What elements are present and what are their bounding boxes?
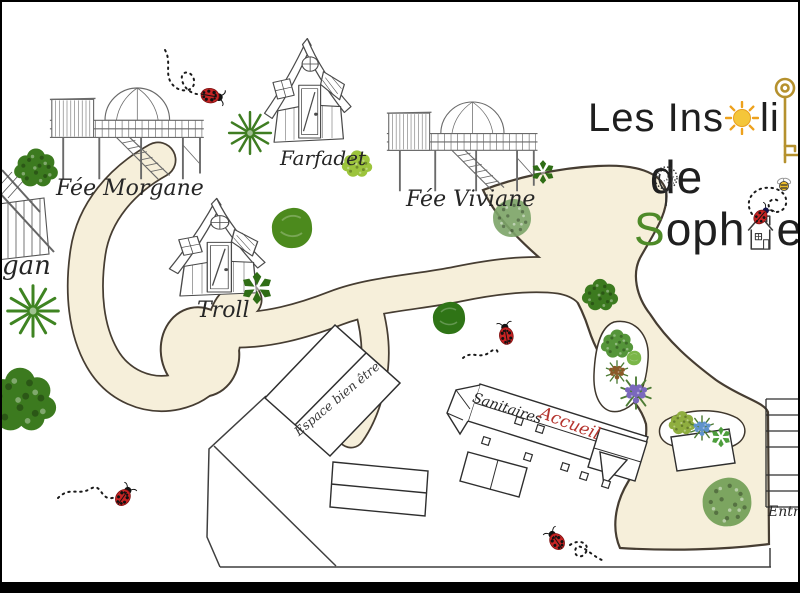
bush-icon (14, 148, 58, 186)
cabin-label-korrigan-partial: gan (2, 253, 51, 279)
fern-icon (8, 286, 59, 337)
parking-stalls (766, 399, 799, 507)
key-icon (772, 76, 800, 179)
bush-icon (272, 208, 312, 248)
logo-text: e (776, 206, 800, 252)
cabin-label-fee-morgane: Fée Morgane (56, 178, 204, 200)
fern-icon (229, 112, 271, 154)
cabin-label-fee-viviane: Fée Viviane (406, 189, 535, 211)
ladybug-icon (543, 526, 568, 553)
cabin-fee-viviane-illustration (387, 102, 538, 191)
ladybug-icon (112, 482, 137, 509)
ladybug-icon (200, 86, 226, 106)
map-canvas (0, 0, 800, 600)
tree-icon (648, 164, 684, 213)
site-map: gan Fée Morgane Farfadet Fée Viviane Tro… (0, 0, 800, 600)
logo-line1: Les Ins li (588, 98, 780, 138)
big-bush-icon (0, 368, 56, 431)
map-label-entree: Entrée (768, 505, 800, 519)
sun-icon (725, 101, 759, 135)
bush-icon (433, 302, 465, 334)
cabin-farfadet-illustration (265, 39, 351, 143)
cabin-label-troll: Troll (197, 300, 250, 322)
building-two-rows (330, 462, 428, 516)
cabin-label-farfadet: Farfadet (280, 148, 366, 168)
ladybug-icon (496, 321, 515, 346)
bee-icon (776, 177, 791, 190)
logo-text: Les Ins (588, 98, 724, 138)
